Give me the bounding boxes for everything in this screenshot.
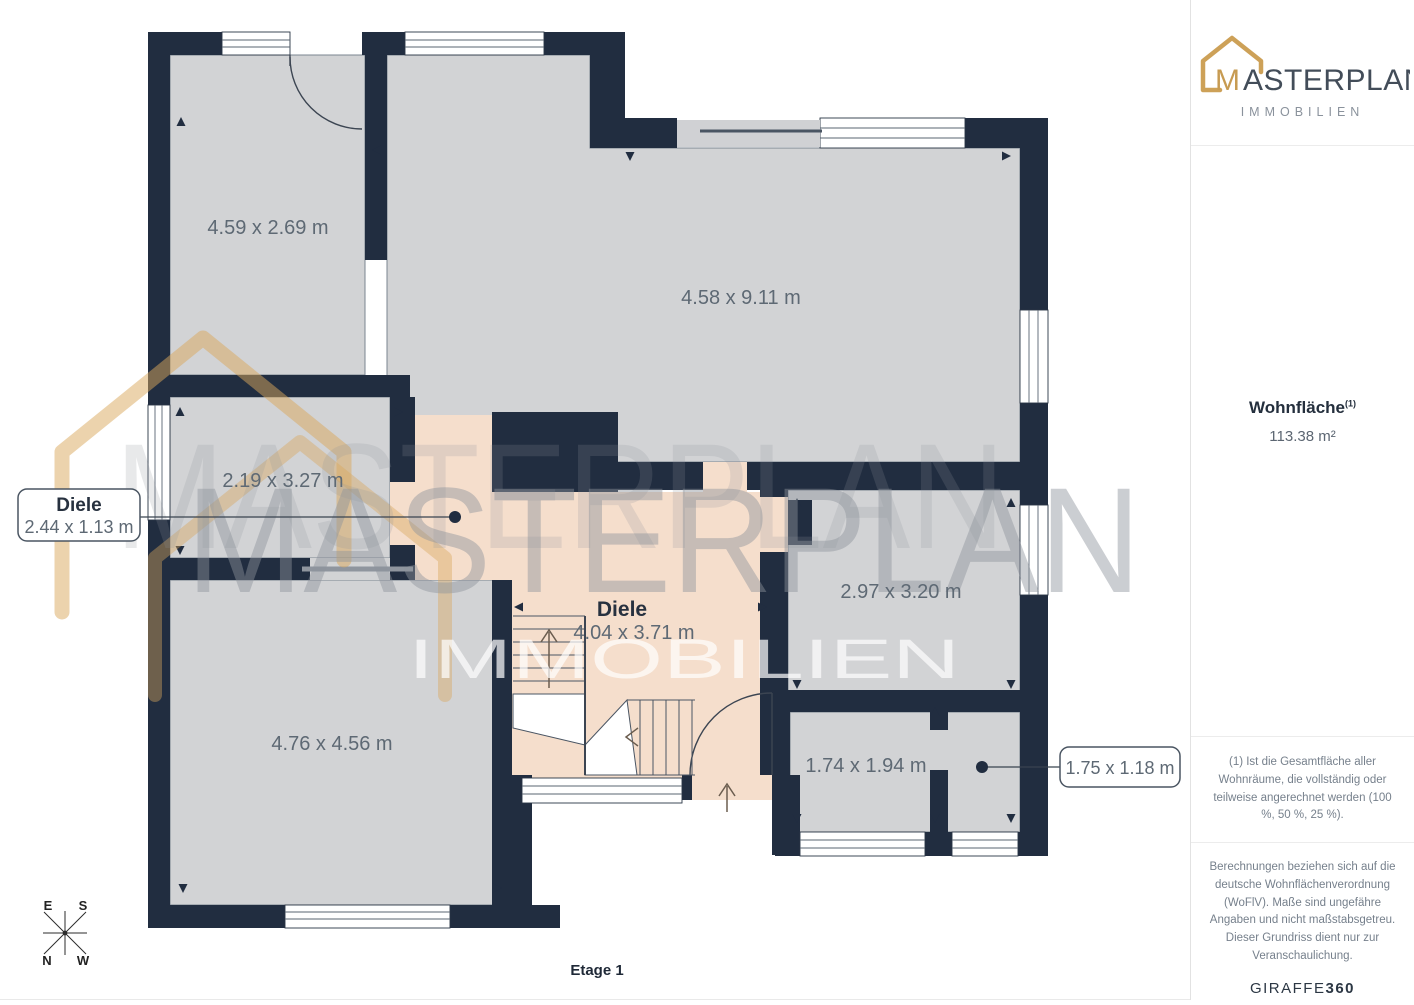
callout-left-title: Diele bbox=[56, 495, 101, 516]
room-bottom-right-label: 1.74 x 1.94 m bbox=[805, 755, 926, 777]
giraffe360-bold: 360 bbox=[1325, 980, 1355, 997]
living-area-title: Wohnfläche(1) bbox=[1191, 398, 1414, 418]
living-area-value: 113.38 m² bbox=[1191, 428, 1414, 445]
logo-subtitle: IMMOBILIEN bbox=[1191, 105, 1414, 119]
callout-right-dims: 1.75 x 1.18 m bbox=[1065, 758, 1174, 778]
diele-dims-label: 4.04 x 3.71 m bbox=[573, 622, 694, 644]
room-bottom-left-label: 4.76 x 4.56 m bbox=[271, 733, 392, 755]
callout-left-anchor-dot bbox=[449, 511, 461, 523]
room-mid-right-label: 2.97 x 3.20 m bbox=[840, 581, 961, 603]
disclaimer-section: Berechnungen beziehen sich auf die deuts… bbox=[1191, 843, 1414, 999]
brand-logo-svg: M ASTERPLAN bbox=[1196, 34, 1410, 96]
entry-opening bbox=[692, 775, 772, 800]
logo-letter-m: M bbox=[1215, 64, 1240, 96]
room-mid-left-label: 2.19 x 3.27 m bbox=[222, 470, 343, 492]
floor-plan-svg: MASTERPLAN MASTERPLAN IMMOBILIEN 4.59 x … bbox=[0, 0, 1190, 1000]
room-top-left-floor bbox=[170, 55, 365, 375]
living-area-section: Wohnfläche(1) 113.38 m² bbox=[1191, 146, 1414, 737]
compass-south: S bbox=[79, 898, 88, 913]
disclaimer-text: Berechnungen beziehen sich auf die deuts… bbox=[1207, 859, 1398, 966]
living-area-footnote-marker: (1) bbox=[1345, 398, 1356, 408]
diele-name-label: Diele bbox=[597, 598, 647, 621]
compass: E S N W bbox=[42, 898, 90, 968]
room-living-floor bbox=[387, 55, 1020, 462]
floor-title: Etage 1 bbox=[570, 962, 623, 979]
floor-plan-area: MASTERPLAN MASTERPLAN IMMOBILIEN 4.59 x … bbox=[0, 0, 1190, 1000]
room-living-label: 4.58 x 9.11 m bbox=[681, 287, 801, 309]
compass-east: E bbox=[44, 898, 53, 913]
footnote-section: (1) Ist die Gesamtfläche aller Wohnräume… bbox=[1191, 737, 1414, 843]
info-sidebar: M ASTERPLAN IMMOBILIEN Wohnfläche(1) 113… bbox=[1190, 0, 1414, 1000]
room-top-left-label: 4.59 x 2.69 m bbox=[207, 217, 328, 239]
brand-logo: M ASTERPLAN IMMOBILIEN bbox=[1191, 0, 1414, 146]
footnote-text: (1) Ist die Gesamtfläche aller Wohnräume… bbox=[1209, 754, 1396, 825]
compass-north: N bbox=[42, 953, 51, 968]
callout-left-dims: 2.44 x 1.13 m bbox=[24, 517, 133, 537]
logo-wordmark: ASTERPLAN bbox=[1243, 64, 1410, 96]
living-area-label: Wohnfläche bbox=[1249, 398, 1345, 417]
giraffe360-regular: GIRAFFE bbox=[1250, 980, 1326, 997]
compass-west: W bbox=[77, 953, 90, 968]
giraffe360-logo: GIRAFFE360 bbox=[1207, 980, 1398, 997]
sliding-door-panel bbox=[677, 120, 820, 147]
callout-right-anchor-dot bbox=[976, 761, 988, 773]
